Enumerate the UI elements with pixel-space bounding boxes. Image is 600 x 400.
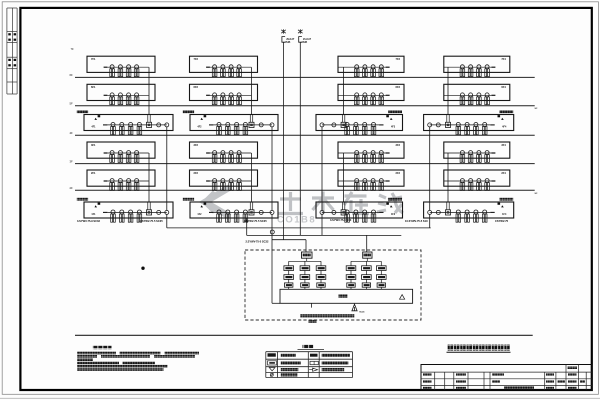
svg-text:75: 75 (112, 134, 114, 136)
svg-text:75: 75 (136, 162, 138, 164)
svg-text:75: 75 (461, 190, 463, 192)
svg-text:75: 75 (457, 221, 459, 223)
svg-text:75: 75 (486, 190, 488, 192)
svg-text:75: 75 (128, 76, 130, 78)
svg-text:75: 75 (230, 76, 232, 78)
svg-text:4F3: 4F3 (391, 126, 396, 129)
svg-text:75: 75 (128, 104, 130, 106)
svg-text:CO1B8: CO1B8 (277, 215, 316, 226)
svg-text:75: 75 (486, 162, 488, 164)
svg-text:5F: 5F (70, 102, 74, 106)
svg-text:75: 75 (380, 76, 382, 78)
svg-text:15dB: 15dB (302, 42, 308, 44)
svg-text:SC: SC (535, 108, 538, 110)
svg-text:75: 75 (238, 76, 240, 78)
svg-text:75: 75 (119, 76, 121, 78)
svg-text:75: 75 (214, 190, 216, 192)
svg-text:75: 75 (372, 190, 374, 192)
svg-text:75: 75 (121, 221, 123, 223)
svg-text:75: 75 (111, 190, 113, 192)
svg-text:75: 75 (130, 221, 132, 223)
svg-text:75: 75 (356, 76, 358, 78)
svg-text:CSYWV-75-5 SC25: CSYWV-75-5 SC25 (140, 219, 163, 223)
svg-text:6F3: 6F3 (396, 85, 401, 89)
svg-text:4F1: 4F1 (91, 126, 96, 129)
svg-text:75: 75 (119, 162, 121, 164)
svg-text:SC: SC (535, 193, 538, 195)
svg-text:75: 75 (364, 190, 366, 192)
svg-text:3F2: 3F2 (194, 143, 199, 147)
svg-text:75: 75 (346, 134, 348, 136)
svg-text:7F4: 7F4 (501, 57, 506, 61)
svg-text:75: 75 (461, 76, 463, 78)
svg-text:75: 75 (461, 162, 463, 164)
svg-text:75: 75 (222, 162, 224, 164)
svg-text:75: 75 (372, 221, 374, 223)
svg-text:75: 75 (222, 104, 224, 106)
svg-text:CSYWV-75: CSYWV-75 (495, 219, 509, 223)
svg-text:2F4: 2F4 (501, 171, 506, 175)
svg-text:3F1: 3F1 (91, 143, 96, 147)
svg-text:75: 75 (214, 162, 216, 164)
svg-text:75: 75 (478, 76, 480, 78)
svg-text:75: 75 (372, 162, 374, 164)
svg-text:75: 75 (372, 104, 374, 106)
svg-text:3F4: 3F4 (501, 143, 506, 147)
svg-text:4F: 4F (70, 131, 74, 135)
svg-text:75: 75 (222, 76, 224, 78)
svg-text:75: 75 (380, 162, 382, 164)
svg-text:75: 75 (461, 104, 463, 106)
svg-text:3.SYWV-75-9 S1X: 3.SYWV-75-9 S1X (330, 218, 352, 222)
svg-text:75: 75 (372, 134, 374, 136)
svg-text:7F1: 7F1 (91, 57, 96, 61)
svg-text:75: 75 (478, 162, 480, 164)
svg-text:75: 75 (214, 76, 216, 78)
svg-text:75: 75 (380, 104, 382, 106)
svg-text:75: 75 (121, 134, 123, 136)
svg-text:75: 75 (484, 134, 486, 136)
svg-text:75: 75 (236, 134, 238, 136)
svg-text:75: 75 (486, 76, 488, 78)
svg-text:75: 75 (470, 104, 472, 106)
svg-text:2F1: 2F1 (91, 171, 96, 175)
svg-text:75: 75 (355, 221, 357, 223)
svg-text:75: 75 (130, 134, 132, 136)
svg-text:75: 75 (478, 104, 480, 106)
svg-text:75: 75 (136, 76, 138, 78)
svg-text:75: 75 (356, 162, 358, 164)
svg-text:75: 75 (470, 76, 472, 78)
svg-text:75: 75 (238, 162, 240, 164)
svg-text:7F: 7F (71, 47, 75, 51)
svg-text:75: 75 (214, 104, 216, 106)
svg-text:2F2: 2F2 (194, 171, 199, 175)
svg-text:7F3: 7F3 (396, 57, 401, 61)
svg-text:75: 75 (364, 76, 366, 78)
svg-text:4F2: 4F2 (197, 126, 202, 129)
svg-text:75: 75 (486, 104, 488, 106)
svg-text:75: 75 (364, 104, 366, 106)
svg-text:2.SYWV-75-5 SC32: 2.SYWV-75-5 SC32 (246, 239, 269, 243)
svg-text:75: 75 (230, 104, 232, 106)
svg-text:10.SYWV-75-5 S1X: 10.SYWV-75-5 S1X (405, 219, 428, 223)
svg-text:3.SYWV-75-9 SC32: 3.SYWV-75-9 SC32 (77, 219, 100, 223)
svg-text:75: 75 (218, 134, 220, 136)
svg-text:75: 75 (355, 134, 357, 136)
svg-text:CSYWV-75-5 SC25: CSYWV-75-5 SC25 (244, 219, 267, 223)
svg-text:75: 75 (372, 76, 374, 78)
svg-text:75: 75 (218, 221, 220, 223)
svg-text:75: 75 (230, 190, 232, 192)
svg-text:75: 75 (128, 162, 130, 164)
svg-text:7F2: 7F2 (194, 57, 199, 61)
svg-text:75: 75 (136, 104, 138, 106)
svg-text:75: 75 (119, 190, 121, 192)
svg-text:75: 75 (112, 221, 114, 223)
svg-text:1F2: 1F2 (197, 213, 202, 216)
svg-text:6F4: 6F4 (501, 85, 506, 89)
svg-text:75: 75 (380, 190, 382, 192)
svg-text:3F3: 3F3 (396, 143, 401, 147)
svg-text:75: 75 (227, 221, 229, 223)
svg-text:75: 75 (364, 162, 366, 164)
svg-text:4F4: 4F4 (502, 126, 507, 129)
svg-text:6F: 6F (70, 73, 74, 77)
svg-text:SC25: SC25 (359, 312, 365, 314)
svg-text:75: 75 (356, 190, 358, 192)
svg-text:75: 75 (238, 190, 240, 192)
svg-text:75: 75 (466, 134, 468, 136)
svg-text:75: 75 (478, 190, 480, 192)
svg-text:75: 75 (364, 221, 366, 223)
svg-text:75: 75 (230, 162, 232, 164)
svg-text:JS-KAT: JS-KAT (303, 38, 312, 41)
svg-text:75: 75 (244, 134, 246, 136)
svg-text:15dB: 15dB (285, 42, 291, 44)
svg-text:75: 75 (227, 134, 229, 136)
svg-text:75: 75 (457, 134, 459, 136)
svg-text:75: 75 (119, 104, 121, 106)
svg-text:2F: 2F (70, 186, 74, 190)
svg-text:75: 75 (364, 134, 366, 136)
svg-text:75: 75 (236, 221, 238, 223)
svg-text:75: 75 (136, 190, 138, 192)
svg-text:75: 75 (475, 221, 477, 223)
svg-text:75: 75 (111, 104, 113, 106)
svg-text:75: 75 (484, 221, 486, 223)
svg-text:6F2: 6F2 (194, 85, 199, 89)
svg-text:75: 75 (111, 162, 113, 164)
svg-text:75: 75 (470, 190, 472, 192)
svg-text:75: 75 (475, 134, 477, 136)
svg-text:75: 75 (470, 162, 472, 164)
svg-text:75: 75 (128, 190, 130, 192)
svg-text:2F3: 2F3 (396, 171, 401, 175)
svg-text:75: 75 (238, 104, 240, 106)
svg-text:75: 75 (466, 221, 468, 223)
svg-text:3F: 3F (70, 159, 74, 163)
svg-text:1F3: 1F3 (391, 213, 396, 216)
svg-text:75: 75 (222, 190, 224, 192)
svg-text:75: 75 (138, 134, 140, 136)
svg-text:6F1: 6F1 (91, 85, 96, 89)
svg-text:75: 75 (356, 104, 358, 106)
svg-text:75: 75 (111, 76, 113, 78)
svg-text:1F4: 1F4 (502, 213, 507, 216)
svg-text:JS-KAT: JS-KAT (286, 38, 295, 41)
svg-text:1F1: 1F1 (91, 213, 96, 216)
